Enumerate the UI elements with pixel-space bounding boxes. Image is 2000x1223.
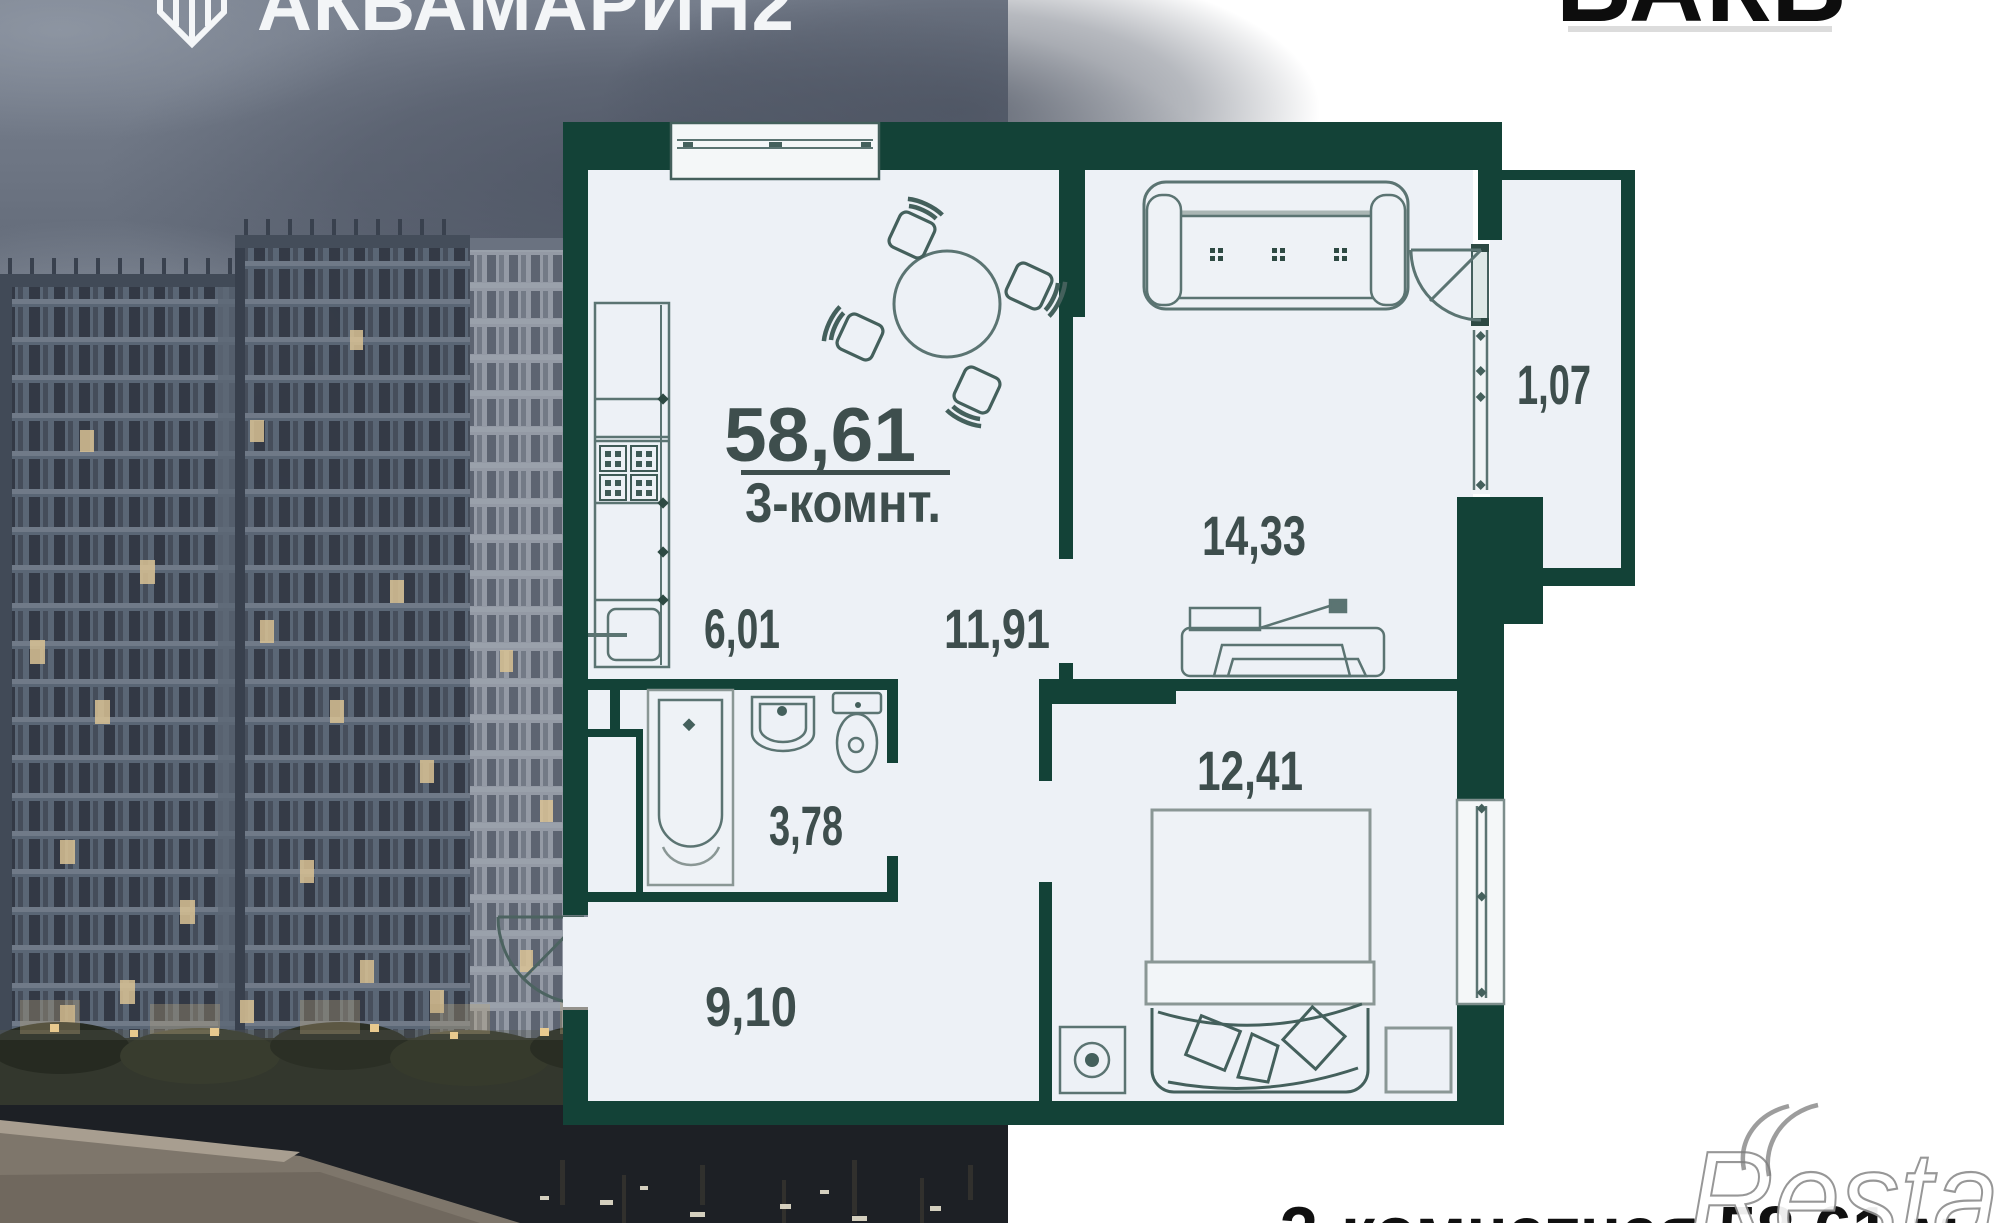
svg-text:БАКВ: БАКВ — [1556, 0, 1848, 44]
svg-text:3,78: 3,78 — [769, 794, 843, 857]
svg-text:1,07: 1,07 — [1517, 353, 1591, 416]
svg-text:6,01: 6,01 — [704, 597, 780, 660]
svg-text:11,91: 11,91 — [944, 597, 1050, 660]
svg-text:58,61: 58,61 — [724, 393, 916, 478]
svg-text:3-комнт.: 3-комнт. — [745, 471, 941, 534]
svg-text:9,10: 9,10 — [705, 975, 797, 1038]
svg-text:12,41: 12,41 — [1197, 739, 1303, 802]
svg-text:АКВАМАРИН2: АКВАМАРИН2 — [257, 0, 795, 47]
svg-text:Restate: Restate — [1688, 1124, 2000, 1223]
svg-text:14,33: 14,33 — [1202, 504, 1306, 567]
